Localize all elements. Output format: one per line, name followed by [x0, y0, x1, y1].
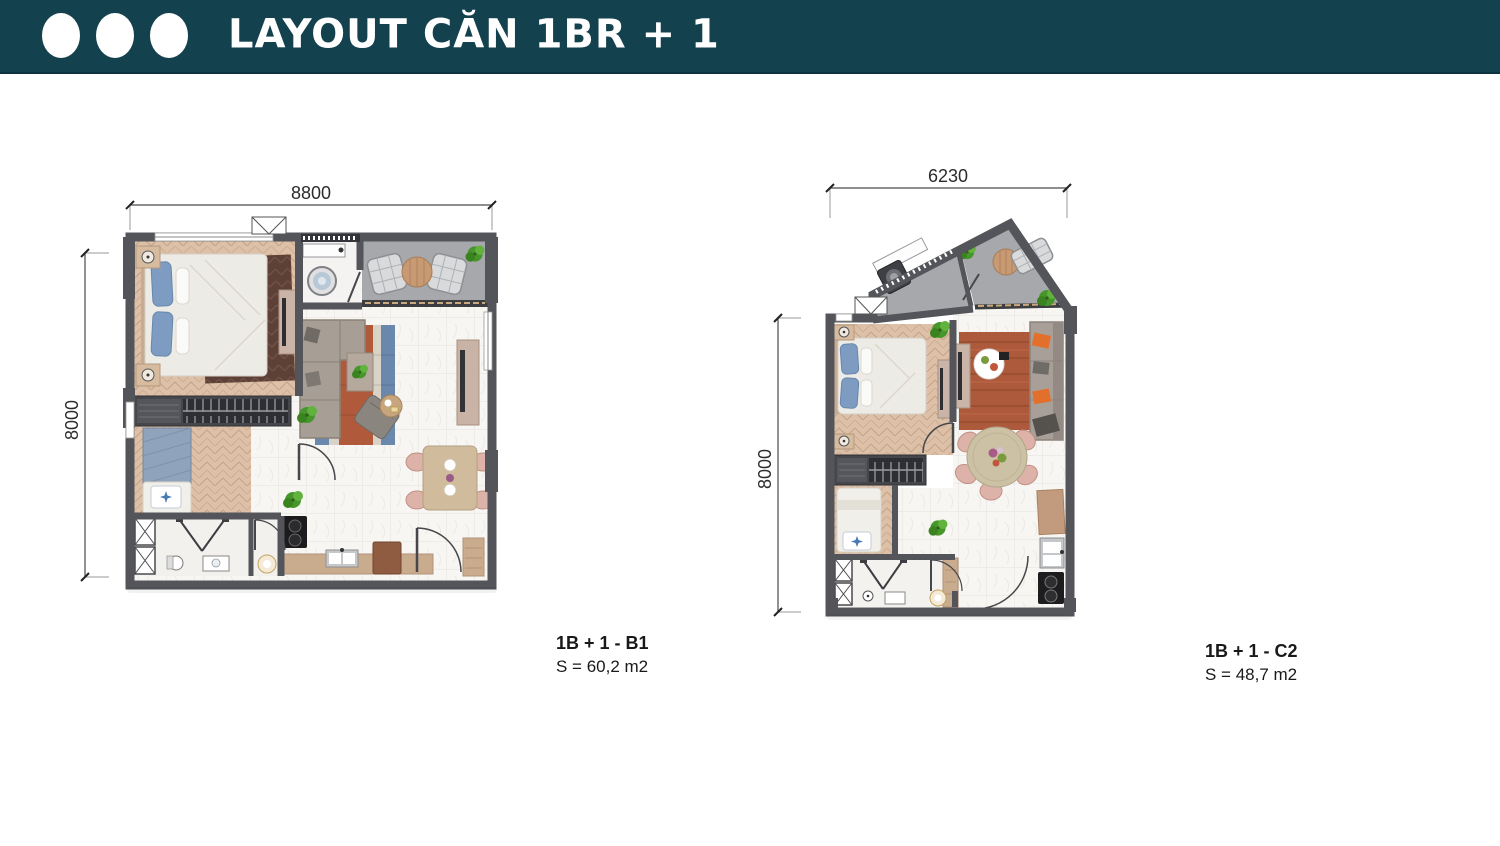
plan-c2-label: 1B + 1 - C2 S = 48,7 m2 [1205, 640, 1298, 686]
kitchen-counter [1037, 489, 1065, 534]
dimension-width: 8800 [126, 183, 496, 230]
washer-icon [308, 267, 336, 295]
shoe-cabinet [463, 538, 484, 576]
floor-plan-b1-drawing: 8800 8000 [55, 150, 505, 630]
coffee-table [347, 353, 373, 391]
shaft-icon [135, 518, 155, 545]
pillar [485, 450, 498, 492]
dim-height-value: 8000 [755, 449, 775, 489]
dimension-height: 8000 [755, 314, 801, 616]
nightstand [136, 364, 160, 386]
bullet-dot-icon [150, 13, 188, 58]
vent-symbol [855, 297, 887, 314]
bedroom-tv-dresser [279, 290, 296, 354]
plan-c2-name: 1B + 1 - C2 [1205, 640, 1298, 663]
bathroom-sink [885, 592, 905, 604]
window [126, 402, 134, 438]
nightstand [834, 434, 854, 449]
pillar [1064, 306, 1077, 334]
vent-symbol [252, 217, 286, 234]
side-table [380, 395, 402, 417]
pillar [485, 237, 498, 303]
nightstand [136, 246, 160, 268]
window [836, 314, 852, 321]
nook-rug [143, 428, 191, 484]
bedroom-tv-dresser [938, 360, 950, 418]
cooktop [1038, 572, 1064, 604]
shaft-icon [835, 559, 852, 581]
dim-width-value: 8800 [291, 183, 331, 203]
fridge [373, 542, 401, 574]
page: LAYOUT CĂN 1BR + 1 [0, 0, 1500, 846]
shaft-icon [135, 547, 155, 574]
floor-plan-c2: 6230 8000 [735, 148, 1145, 668]
bathroom-sink [203, 556, 229, 571]
bedroom [134, 246, 296, 426]
dim-height-value: 8000 [62, 400, 82, 440]
plus-one-room [143, 428, 191, 514]
page-title: LAYOUT CĂN 1BR + 1 [228, 12, 720, 58]
plan-c2-area: S = 48,7 m2 [1205, 663, 1298, 686]
plan-b1-name: 1B + 1 - B1 [556, 632, 649, 655]
living-tv-console [956, 344, 970, 408]
pillar [1064, 598, 1076, 612]
wardrobe [834, 455, 926, 485]
balcony-table [402, 257, 432, 287]
bullet-dot-icon [42, 13, 80, 58]
cooktop [283, 516, 307, 548]
bullet-dot-icon [96, 13, 134, 58]
plan-b1-area: S = 60,2 m2 [556, 655, 649, 678]
plan-shadow [827, 614, 1072, 620]
floor-plan-b1: 8800 8000 [55, 150, 505, 630]
header-bar: LAYOUT CĂN 1BR + 1 [0, 0, 1500, 74]
bed [141, 254, 267, 376]
bed [834, 338, 926, 414]
dimension-height: 8000 [62, 249, 109, 581]
plan-shadow [127, 587, 497, 593]
nightstand [834, 325, 854, 340]
tv-console [457, 340, 479, 425]
pillar [123, 237, 135, 299]
dim-width-value: 6230 [928, 166, 968, 186]
floor-plan-c2-drawing: 6230 8000 [735, 148, 1145, 668]
plus-one-room [837, 488, 881, 552]
kitchen-sink [326, 548, 358, 567]
faucet-icon [339, 248, 344, 253]
dimension-width: 6230 [826, 166, 1071, 218]
kitchen-sink [1040, 538, 1064, 568]
toilet-icon [167, 556, 183, 570]
pendant-lamp-icon [863, 591, 873, 601]
plan-b1-label: 1B + 1 - B1 S = 60,2 m2 [556, 632, 649, 678]
wardrobe [134, 396, 291, 426]
pillar [826, 598, 838, 612]
sofa [1030, 322, 1063, 440]
